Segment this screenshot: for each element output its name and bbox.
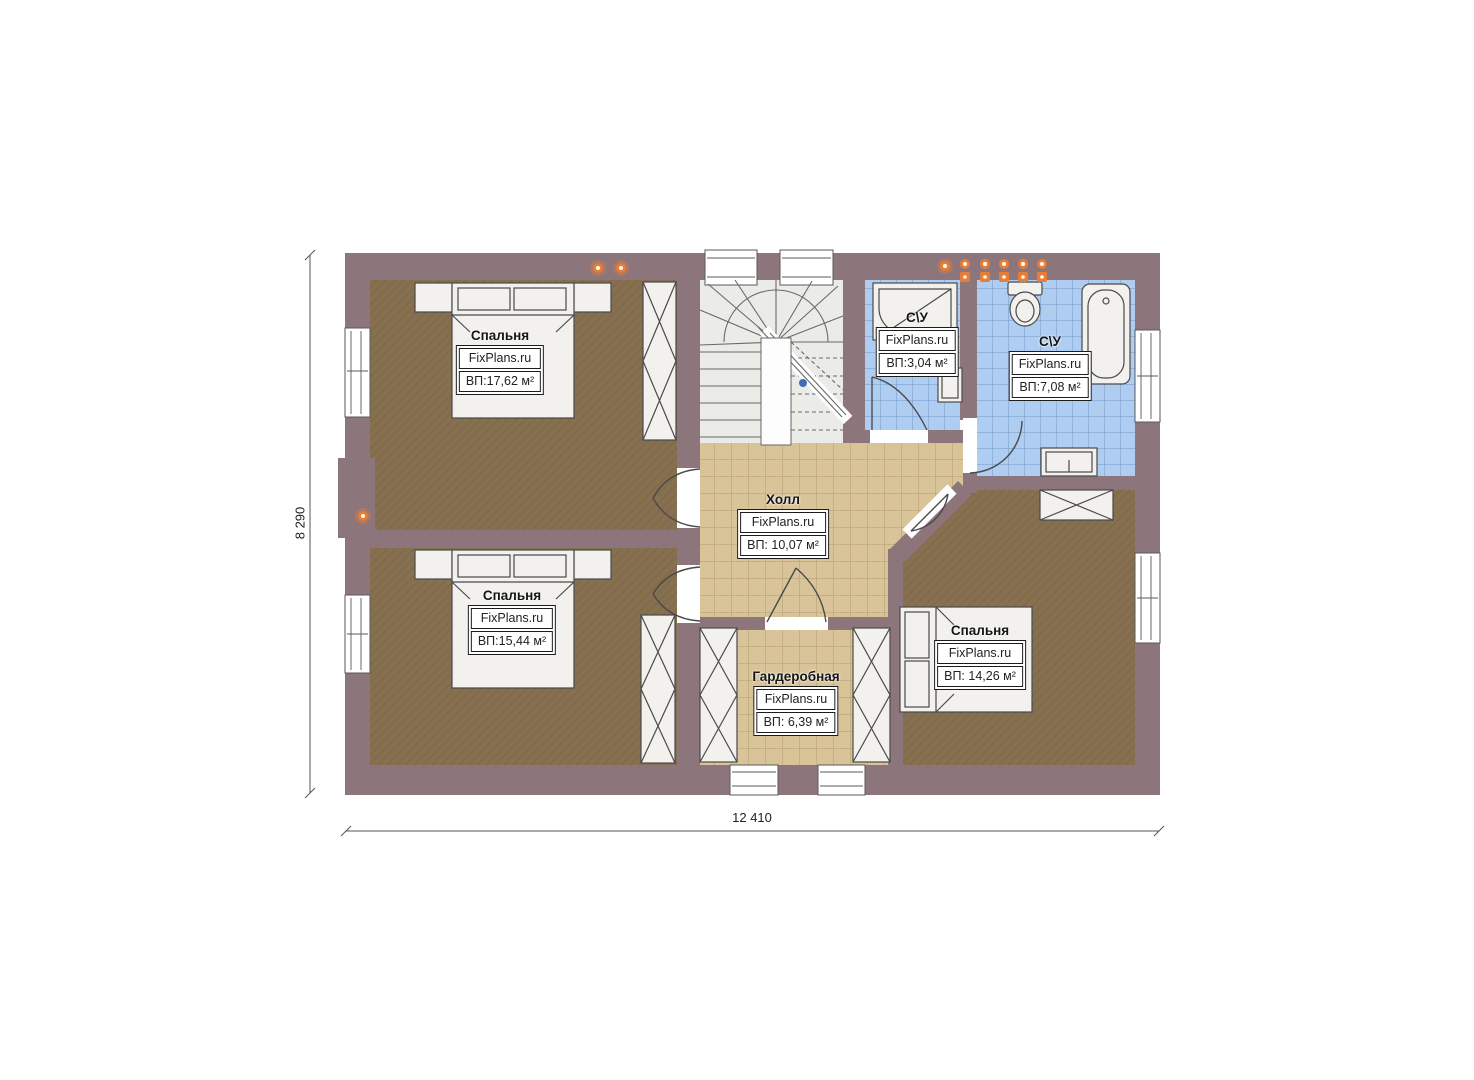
room-info-box: FixPlans.ru ВП:15,44 м² (468, 605, 556, 655)
door-opening-bathroom-small (870, 430, 928, 443)
nightstand (574, 550, 611, 579)
dimension-line-width (341, 826, 1164, 836)
pillow (458, 288, 510, 310)
area-label: ВП:7,08 м² (1012, 377, 1089, 398)
room-name: С\У (1009, 334, 1092, 349)
area-label: ВП:15,44 м² (471, 631, 553, 652)
brand-label: FixPlans.ru (459, 348, 541, 369)
pillow (458, 555, 510, 577)
room-label-bathroom-small: С\У FixPlans.ru ВП:3,04 м² (876, 310, 959, 377)
window-left-top (345, 328, 370, 417)
room-info-box: FixPlans.ru ВП:7,08 м² (1009, 351, 1092, 401)
window-bottom-wardrobe-2 (818, 765, 865, 795)
nightstand (415, 550, 452, 579)
pillow (514, 288, 566, 310)
room-label-hall: Холл FixPlans.ru ВП: 10,07 м² (737, 492, 829, 559)
stair-direction-marker (799, 379, 807, 387)
stair-void (761, 338, 791, 445)
nightstand (415, 283, 452, 312)
wall-stair-bath (843, 280, 865, 432)
dimension-height-label: 8 290 (293, 507, 308, 540)
room-label-bedroom-bottom-left: Спальня FixPlans.ru ВП:15,44 м² (468, 588, 556, 655)
room-label-bathroom-large: С\У FixPlans.ru ВП:7,08 м² (1009, 334, 1092, 401)
closet-wardrobe-left (700, 628, 737, 762)
room-info-box: FixPlans.ru ВП:3,04 м² (876, 327, 959, 377)
room-name: С\У (876, 310, 959, 325)
window-left-bottom (345, 595, 370, 673)
door-opening-bedroom-top-left (677, 468, 700, 528)
closet-bedroom-bottom-left (641, 615, 675, 763)
room-info-box: FixPlans.ru ВП: 14,26 м² (934, 640, 1026, 690)
closet-bedroom-bottom-right (1040, 490, 1113, 520)
washbasin-large (1041, 448, 1097, 476)
window-bottom-wardrobe-1 (730, 765, 778, 795)
brand-label: FixPlans.ru (937, 643, 1023, 664)
closet-bedroom-top-left (643, 282, 676, 440)
pillow (905, 612, 929, 658)
chimney-block (338, 458, 375, 538)
brand-label: FixPlans.ru (1012, 354, 1089, 375)
floor-plan-page: Спальня FixPlans.ru ВП:17,62 м² Спальня … (0, 0, 1474, 1080)
room-label-wardrobe: Гардеробная FixPlans.ru ВП: 6,39 м² (752, 669, 839, 736)
lamp-icon (355, 508, 371, 524)
dimension-width-label: 12 410 (732, 810, 772, 825)
door-opening-wardrobe (765, 617, 828, 630)
door-opening-bathroom-large (963, 418, 977, 473)
wall-bath-large-bottom (977, 476, 1135, 490)
door-opening-bedroom-bottom-left (677, 565, 700, 623)
window-right-bedroom (1135, 553, 1160, 643)
room-name: Гардеробная (752, 669, 839, 684)
pillow (905, 661, 929, 707)
room-info-box: FixPlans.ru ВП:17,62 м² (456, 345, 544, 395)
area-label: ВП: 6,39 м² (757, 712, 836, 733)
toilet (1008, 282, 1042, 326)
brand-label: FixPlans.ru (471, 608, 553, 629)
window-right-bathroom (1135, 330, 1160, 422)
closet-wardrobe-right (853, 628, 890, 762)
room-label-bedroom-bottom-right: Спальня FixPlans.ru ВП: 14,26 м² (934, 623, 1026, 690)
window-top-stair-1 (705, 250, 757, 285)
wall-between-left-bedrooms (370, 530, 700, 548)
lamp-icon (590, 260, 606, 276)
area-label: ВП: 14,26 м² (937, 666, 1023, 687)
room-name: Спальня (934, 623, 1026, 638)
brand-label: FixPlans.ru (879, 330, 956, 351)
room-info-box: FixPlans.ru ВП: 6,39 м² (754, 686, 839, 736)
room-label-bedroom-top-left: Спальня FixPlans.ru ВП:17,62 м² (456, 328, 544, 395)
area-label: ВП: 10,07 м² (740, 535, 826, 556)
brand-label: FixPlans.ru (757, 689, 836, 710)
room-name: Спальня (456, 328, 544, 343)
nightstand (574, 283, 611, 312)
lamp-icon (613, 260, 629, 276)
brand-label: FixPlans.ru (740, 512, 826, 533)
area-label: ВП:17,62 м² (459, 371, 541, 392)
room-name: Спальня (468, 588, 556, 603)
area-label: ВП:3,04 м² (879, 353, 956, 374)
lamp-icon (937, 258, 953, 274)
room-info-box: FixPlans.ru ВП: 10,07 м² (737, 509, 829, 559)
window-top-stair-2 (780, 250, 833, 285)
pillow (514, 555, 566, 577)
room-name: Холл (737, 492, 829, 507)
